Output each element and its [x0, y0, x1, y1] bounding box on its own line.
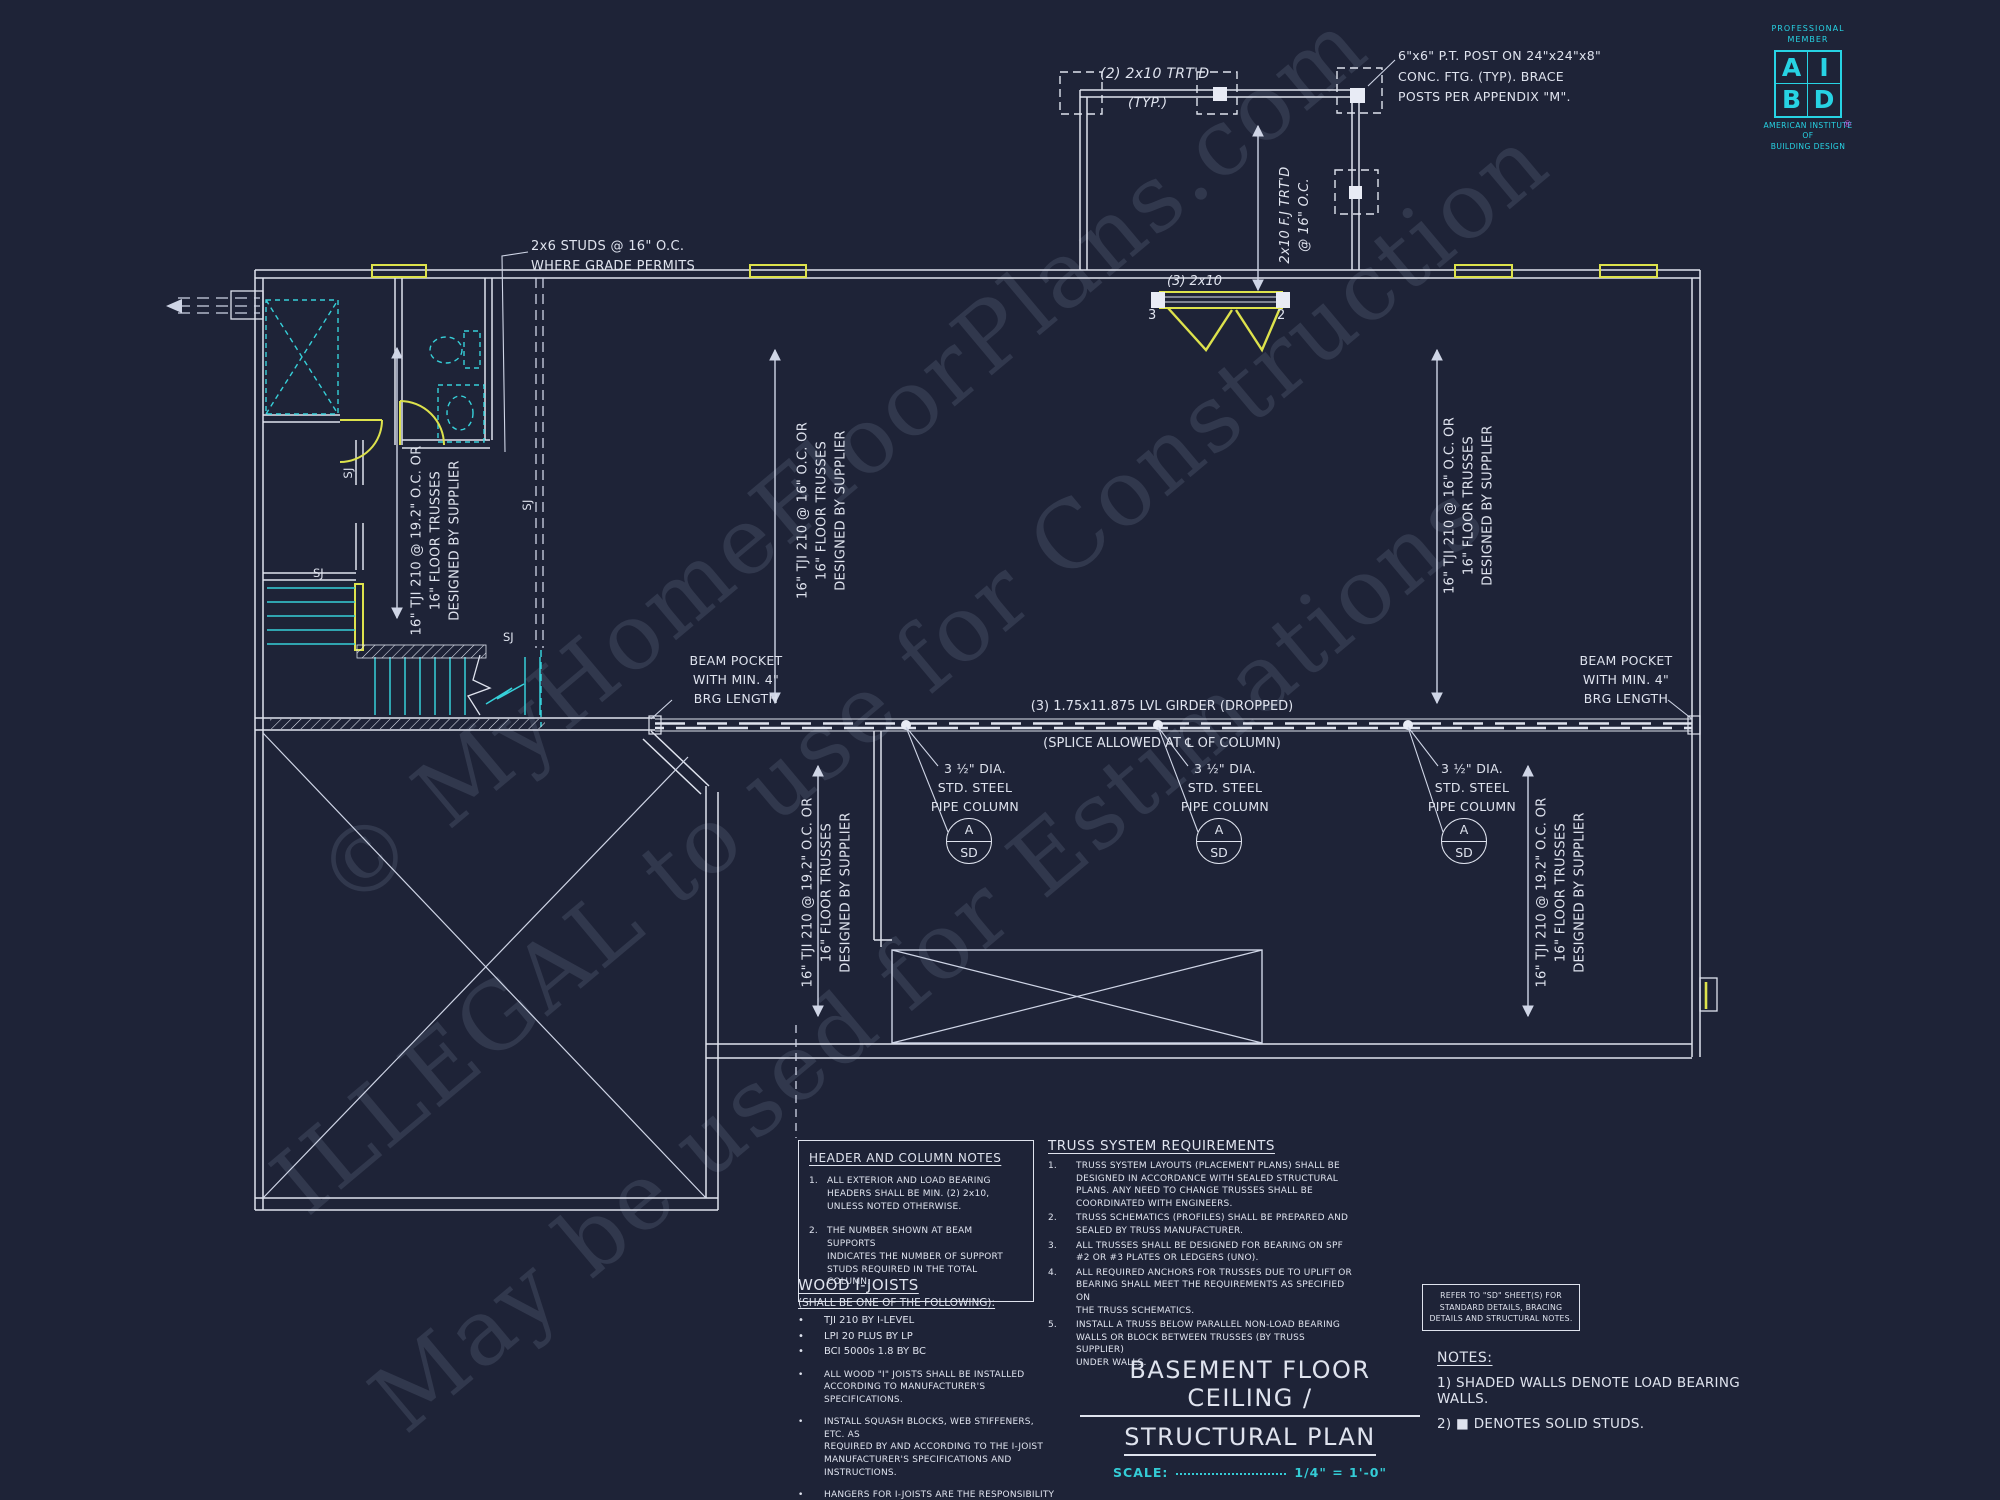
detail-bubble-letter: A — [1442, 819, 1486, 842]
detail-bubble-2: A SD — [1196, 818, 1242, 864]
note-text: TRUSS SCHEMATICS (PROFILES) SHALL BE PRE… — [1076, 1212, 1352, 1237]
header-column-notes-title: HEADER AND COLUMN NOTES — [809, 1151, 1023, 1165]
joist-label-lower-center: 16" TJI 210 @ 19.2" O.C. OR 16" FLOOR TR… — [800, 773, 857, 1013]
beam-pocket-note-left: BEAM POCKET WITH MIN. 4" BRG LENGTH — [660, 652, 812, 708]
blueprint-sheet: © MyHomeFloorPlans.com ILLEGAL to use fo… — [0, 0, 2000, 1500]
deck-beam-label: (2) 2x10 TRT'D — [1100, 64, 1209, 85]
support-count-left: 3 — [1148, 308, 1156, 323]
stairs — [267, 588, 545, 729]
note-number: 3. — [1048, 1240, 1076, 1265]
splice-label: (SPLICE ALLOWED AT ℄ OF COLUMN) — [1007, 736, 1317, 751]
studs-note: 2x6 STUDS @ 16" O.C. WHERE GRADE PERMITS — [531, 237, 695, 276]
title-block: BASEMENT FLOOR CEILING / STRUCTURAL PLAN… — [1080, 1356, 1420, 1480]
post-footing-note: 6"x6" P.T. POST ON 24"x24"x8" CONC. FTG.… — [1398, 46, 1628, 108]
wood-option: TJI 210 BY I-LEVEL — [824, 1313, 1056, 1329]
note-text: TRUSS SYSTEM LAYOUTS (PLACEMENT PLANS) S… — [1076, 1160, 1352, 1210]
note-text: ALL EXTERIOR AND LOAD BEARING HEADERS SH… — [827, 1175, 1023, 1213]
detail-bubble-letter: A — [947, 819, 991, 842]
detail-bubble-1: A SD — [946, 818, 992, 864]
aibd-letter-d: D — [1808, 84, 1840, 116]
detail-bubble-sheet: SD — [1442, 842, 1486, 864]
general-notes-block: NOTES: 1) SHADED WALLS DENOTE LOAD BEARI… — [1437, 1350, 1777, 1432]
note-text: INSTALL SQUASH BLOCKS, WEB STIFFENERS, E… — [824, 1416, 1056, 1480]
general-note-1: 1) SHADED WALLS DENOTE LOAD BEARING WALL… — [1437, 1375, 1777, 1407]
header-3-2x10-label: (3) 2x10 — [1167, 274, 1222, 289]
deck-typ-label: (TYP.) — [1128, 93, 1167, 113]
pipe-column-note-3: 3 ½" DIA. STD. STEEL PIPE COLUMN — [1415, 760, 1529, 816]
note-number: 1. — [809, 1175, 827, 1213]
aibd-member-label: PROFESSIONAL MEMBER — [1742, 24, 1874, 46]
crossed-region-left — [263, 733, 706, 1198]
scale-label: SCALE: — [1113, 1465, 1168, 1480]
detail-bubble-sheet: SD — [947, 842, 991, 864]
sj-tag-4: SJ — [519, 490, 535, 520]
note-text: ALL REQUIRED ANCHORS FOR TRUSSES DUE TO … — [1076, 1267, 1352, 1317]
aibd-logo: PROFESSIONAL MEMBER A I B D ® AMERICAN I… — [1742, 24, 1874, 152]
deck-joist-label: 2x10 F.J TRT'D @ 16" O.C. — [1277, 130, 1317, 300]
window-marks — [355, 265, 1706, 1009]
wood-option: LPI 20 PLUS BY LP — [824, 1329, 1056, 1345]
truss-requirements-title: TRUSS SYSTEM REQUIREMENTS — [1048, 1138, 1352, 1154]
detail-bubble-3: A SD — [1441, 818, 1487, 864]
bullet-icon: • — [798, 1369, 824, 1407]
bullet-icon: • — [798, 1416, 824, 1480]
joist-label-upper-right: 16" TJI 210 @ 16" O.C. OR 16" FLOOR TRUS… — [1442, 386, 1499, 626]
aibd-letter-b: B — [1776, 84, 1808, 116]
pipe-column-note-1: 3 ½" DIA. STD. STEEL PIPE COLUMN — [918, 760, 1032, 816]
note-text: ALL WOOD "I" JOISTS SHALL BE INSTALLED A… — [824, 1369, 1056, 1407]
deck-framing — [1060, 68, 1382, 270]
sj-tag-2: SJ — [313, 566, 324, 580]
note-number: 1. — [1048, 1160, 1076, 1210]
wood-option: BCI 5000s 1.8 BY BC — [824, 1344, 1056, 1360]
detail-bubble-sheet: SD — [1197, 842, 1241, 864]
drawing-title-line1: BASEMENT FLOOR CEILING / — [1080, 1356, 1420, 1417]
sd-reference-box: REFER TO "SD" SHEET(S) FOR STANDARD DETA… — [1422, 1284, 1580, 1331]
note-text: HANGERS FOR I-JOISTS ARE THE RESPONSIBIL… — [824, 1489, 1056, 1500]
truss-requirements-block: TRUSS SYSTEM REQUIREMENTS 1. TRUSS SYSTE… — [1048, 1138, 1352, 1370]
support-count-right: 2 — [1277, 308, 1285, 323]
scale-dash-line — [1176, 1471, 1286, 1475]
registered-trademark-icon: ® — [1843, 120, 1852, 130]
drawing-title-line2: STRUCTURAL PLAN — [1124, 1423, 1376, 1456]
aibd-letter-a: A — [1776, 52, 1808, 84]
scale-value: 1/4" = 1'-0" — [1294, 1465, 1387, 1480]
aibd-letter-i: I — [1808, 52, 1840, 84]
lvl-girder — [655, 719, 1692, 731]
note-number: 2. — [1048, 1212, 1076, 1237]
girder-label: (3) 1.75x11.875 LVL GIRDER (DROPPED) — [1007, 699, 1317, 714]
bullet-icon: • — [798, 1489, 824, 1500]
crossed-region-center — [892, 950, 1262, 1043]
aibd-logo-mark: A I B D — [1774, 50, 1842, 118]
note-text: ALL TRUSSES SHALL BE DESIGNED FOR BEARIN… — [1076, 1240, 1352, 1265]
wood-i-joists-block: WOOD I-JOISTS (SHALL BE ONE OF THE FOLLO… — [798, 1276, 1056, 1500]
leader-lines — [502, 60, 1692, 832]
sj-tag-3: SJ — [503, 630, 514, 644]
general-note-2: 2) ■ DENOTES SOLID STUDS. — [1437, 1416, 1777, 1432]
joist-label-upper-left: 16" TJI 210 @ 19.2" O.C. OR 16" FLOOR TR… — [409, 421, 466, 661]
joist-label-upper-center: 16" TJI 210 @ 16" O.C. OR 16" FLOOR TRUS… — [795, 391, 852, 631]
sj-tag-1: SJ — [340, 458, 356, 488]
wood-i-joists-subtitle: (SHALL BE ONE OF THE FOLLOWING): — [798, 1297, 1056, 1309]
bullet-icon: • — [798, 1313, 824, 1329]
bullet-icon: • — [798, 1344, 824, 1360]
joist-label-lower-right: 16" TJI 210 @ 19.2" O.C. OR 16" FLOOR TR… — [1534, 773, 1591, 1013]
beam-pocket-note-right: BEAM POCKET WITH MIN. 4" BRG LENGTH — [1550, 652, 1702, 708]
detail-bubble-letter: A — [1197, 819, 1241, 842]
aibd-org-name: AMERICAN INSTITUTE OF BUILDING DESIGN — [1742, 121, 1874, 153]
wood-i-joists-title: WOOD I-JOISTS — [798, 1276, 1056, 1294]
pipe-column-note-2: 3 ½" DIA. STD. STEEL PIPE COLUMN — [1168, 760, 1282, 816]
general-notes-heading: NOTES: — [1437, 1350, 1777, 1366]
bullet-icon: • — [798, 1329, 824, 1345]
header-assembly — [1151, 292, 1290, 350]
